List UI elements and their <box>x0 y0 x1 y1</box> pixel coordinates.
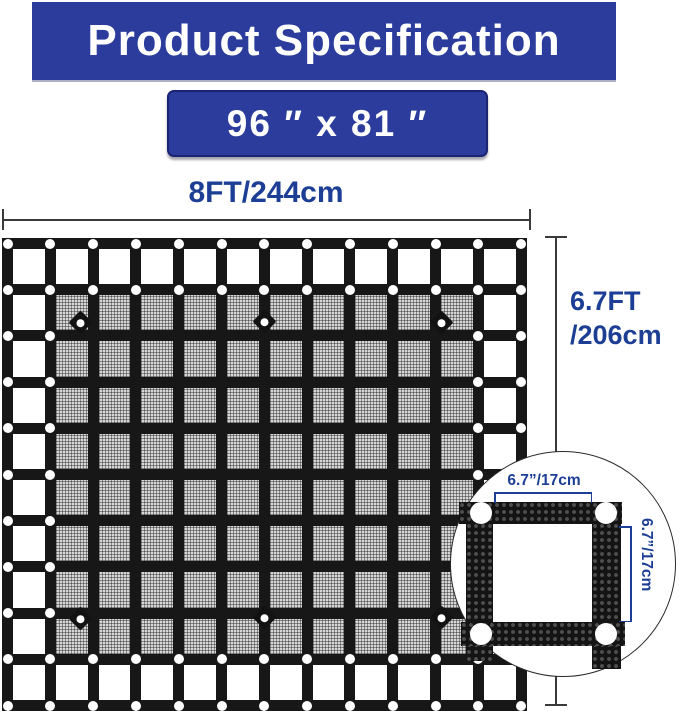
mesh-cell <box>184 388 216 423</box>
mesh-cell <box>141 341 173 376</box>
grommet-icon <box>217 701 227 711</box>
mesh-cell <box>398 480 430 515</box>
mesh-cell <box>99 572 131 607</box>
grommet-icon <box>259 701 269 711</box>
grommet-icon <box>473 701 483 711</box>
mesh-cell <box>227 434 259 469</box>
mesh-cell <box>56 572 88 607</box>
grommet-icon <box>258 611 269 622</box>
grommet-icon <box>259 239 269 249</box>
mesh-cell <box>184 341 216 376</box>
mesh-height-line <box>630 526 632 622</box>
grommet-icon <box>388 701 398 711</box>
grommet-icon <box>435 611 446 622</box>
mesh-cell <box>99 619 131 654</box>
mesh-cell <box>99 480 131 515</box>
mesh-cell <box>141 480 173 515</box>
grommet-icon <box>516 285 526 295</box>
mesh-cell <box>270 526 302 561</box>
mesh-cell <box>141 619 173 654</box>
mesh-detail-inset: 6.7”/17cm 6.7”/17cm <box>450 451 676 677</box>
mesh-cell <box>441 388 473 423</box>
mesh-cell <box>398 619 430 654</box>
mesh-cell <box>355 526 387 561</box>
grommet-icon <box>74 612 85 623</box>
mesh-cell <box>184 526 216 561</box>
grommet-icon <box>431 285 441 295</box>
mesh-cell <box>99 526 131 561</box>
mesh-cell <box>141 388 173 423</box>
grommet-icon <box>470 502 492 524</box>
mesh-cell <box>56 480 88 515</box>
grommet-icon <box>3 516 13 526</box>
grommet-icon <box>174 239 184 249</box>
mesh-cell <box>141 572 173 607</box>
mesh-cell <box>398 572 430 607</box>
mesh-cell <box>184 480 216 515</box>
mesh-cell <box>184 572 216 607</box>
grommet-icon <box>45 285 55 295</box>
mesh-cell <box>270 572 302 607</box>
net-strap-horizontal <box>2 561 527 572</box>
mesh-cell <box>227 388 259 423</box>
mesh-cell <box>227 619 259 654</box>
mesh-cell <box>355 295 387 330</box>
grommet-icon <box>217 285 227 295</box>
grommet-icon <box>516 331 526 341</box>
mesh-cell <box>313 526 345 561</box>
mesh-cell <box>227 295 259 330</box>
mesh-cell <box>99 434 131 469</box>
grommet-icon <box>345 285 355 295</box>
mesh-cell <box>270 480 302 515</box>
mesh-cell <box>184 295 216 330</box>
mesh-cell <box>227 341 259 376</box>
mesh-cell <box>227 526 259 561</box>
mesh-cell <box>270 619 302 654</box>
mesh-cell <box>441 341 473 376</box>
mesh-cell <box>56 388 88 423</box>
mesh-cell <box>398 434 430 469</box>
mesh-width-label: 6.7”/17cm <box>477 472 611 490</box>
net-strap-horizontal <box>2 469 527 480</box>
grommet-icon <box>174 701 184 711</box>
grommet-icon <box>131 285 141 295</box>
grommet-icon <box>302 285 312 295</box>
mesh-cell <box>56 434 88 469</box>
grommet-icon <box>345 239 355 249</box>
mesh-cell <box>355 480 387 515</box>
grommet-icon <box>595 502 617 524</box>
mesh-cell <box>398 341 430 376</box>
mesh-cell <box>270 434 302 469</box>
mesh-cell <box>355 572 387 607</box>
grommet-icon <box>3 562 13 572</box>
mesh-cell <box>355 619 387 654</box>
mesh-cell <box>141 526 173 561</box>
net-strap-horizontal <box>2 423 527 434</box>
net-strap-horizontal <box>2 515 527 526</box>
mesh-cell <box>99 295 131 330</box>
mesh-cell <box>398 388 430 423</box>
grommet-icon <box>131 701 141 711</box>
mesh-cell <box>227 572 259 607</box>
mesh-cell <box>270 295 302 330</box>
mesh-cell <box>184 619 216 654</box>
mesh-cell <box>99 388 131 423</box>
grommet-icon <box>3 377 13 387</box>
mesh-cell <box>398 295 430 330</box>
grommet-icon <box>388 285 398 295</box>
grommet-icon <box>45 239 55 249</box>
grommet-icon <box>45 701 55 711</box>
mesh-cell <box>355 434 387 469</box>
mesh-cell <box>355 388 387 423</box>
grommet-icon <box>595 623 617 645</box>
grommet-icon <box>516 701 526 711</box>
mesh-height-label: 6.7”/17cm <box>637 518 655 634</box>
grommet-icon <box>345 701 355 711</box>
grommet-icon <box>88 285 98 295</box>
grommet-icon <box>473 239 483 249</box>
grommet-icon <box>45 470 55 480</box>
mesh-cell <box>56 526 88 561</box>
mesh-cell <box>99 341 131 376</box>
mesh-cell <box>313 480 345 515</box>
grommet-icon <box>74 316 85 327</box>
net-strap-horizontal <box>2 377 527 388</box>
grommet-icon <box>45 516 55 526</box>
grommet-icon <box>174 654 184 664</box>
grommet-icon <box>435 316 446 327</box>
mesh-cell <box>184 434 216 469</box>
mesh-cell <box>398 526 430 561</box>
grommet-icon <box>3 608 13 618</box>
grommet-icon <box>431 701 441 711</box>
mesh-cell <box>313 388 345 423</box>
mesh-cell <box>227 480 259 515</box>
grommet-icon <box>259 285 269 295</box>
grommet-icon <box>302 701 312 711</box>
grommet-icon <box>431 654 441 664</box>
grommet-icon <box>258 315 269 326</box>
grommet-icon <box>388 654 398 664</box>
mesh-cell <box>313 572 345 607</box>
grommet-icon <box>3 701 13 711</box>
grommet-icon <box>3 331 13 341</box>
mesh-cell <box>441 434 473 469</box>
grommet-icon <box>470 623 492 645</box>
grommet-icon <box>3 239 13 249</box>
mesh-cell <box>313 619 345 654</box>
grommet-icon <box>388 239 398 249</box>
mesh-cell <box>270 388 302 423</box>
grommet-icon <box>431 239 441 249</box>
product-spec-image: Product Specification 96 ″ x 81 ″ 8FT/24… <box>0 0 679 711</box>
mesh-cell <box>141 434 173 469</box>
grommet-icon <box>3 423 13 433</box>
grommet-icon <box>516 239 526 249</box>
grommet-icon <box>473 285 483 295</box>
mesh-cell <box>141 295 173 330</box>
mesh-cell <box>313 341 345 376</box>
grommet-icon <box>174 285 184 295</box>
grommet-icon <box>88 239 98 249</box>
grommet-icon <box>131 239 141 249</box>
grommet-icon <box>3 285 13 295</box>
mesh-cell <box>313 434 345 469</box>
mesh-cell <box>313 295 345 330</box>
grommet-icon <box>3 470 13 480</box>
mesh-width-line <box>494 492 592 494</box>
mesh-cell <box>56 341 88 376</box>
mesh-cell <box>355 341 387 376</box>
grommet-icon <box>88 701 98 711</box>
mesh-cell <box>270 341 302 376</box>
grommet-icon <box>217 654 227 664</box>
grommet-icon <box>302 239 312 249</box>
grommet-icon <box>3 654 13 664</box>
grommet-icon <box>217 239 227 249</box>
